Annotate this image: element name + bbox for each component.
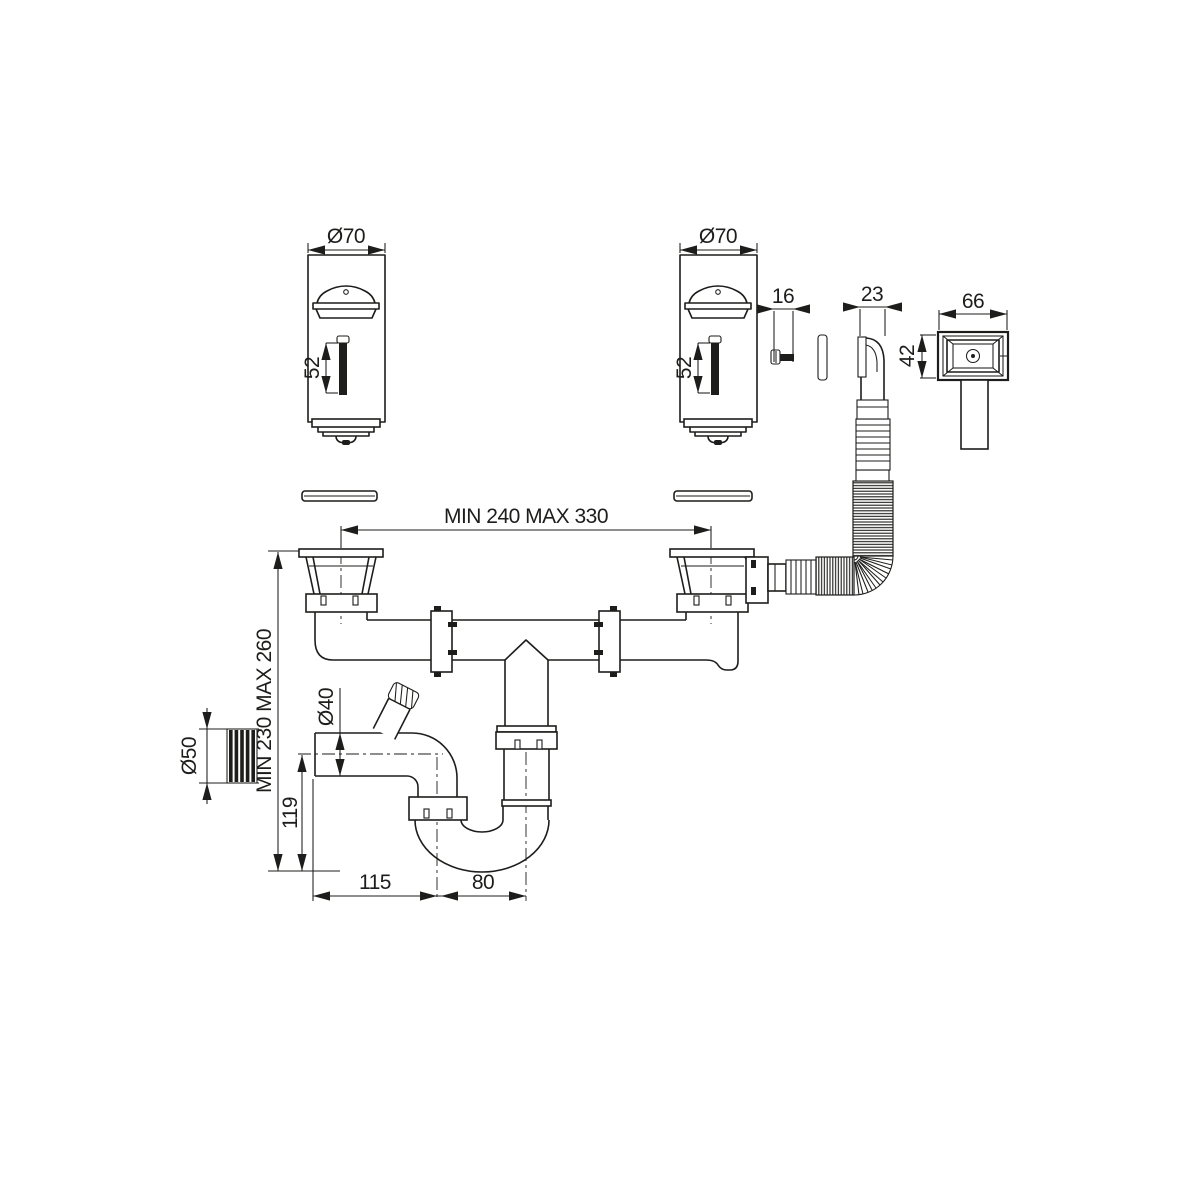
dim-overflow-elbow-width: 23: [843, 283, 902, 336]
dim-waste-pipe-diameter: Ø40: [315, 688, 345, 776]
central-tee: [496, 640, 557, 806]
dim-label-trap-horizontal-run: 115: [359, 871, 391, 894]
overflow-cover: [938, 332, 1008, 449]
dim-label-waste-pipe-diameter: Ø40: [315, 688, 338, 726]
dim-label-bowl-center-distance: MIN 240 MAX 330: [444, 505, 608, 528]
dim-strainer-diameter-left: Ø70: [308, 225, 385, 255]
overflow-cover-stem: [961, 380, 988, 449]
dim-bowl-center-distance: MIN 240 MAX 330: [341, 505, 711, 548]
pipe-coupling-right: [594, 606, 620, 677]
dim-label-strainer-diameter-right: Ø70: [699, 225, 737, 248]
left-exploded-strainer: [308, 255, 385, 445]
dishwasher-inlet: [372, 681, 421, 740]
technical-drawing-page: Ø70 Ø70 52 52 16: [0, 0, 1200, 1200]
dim-label-overflow-elbow-width: 23: [861, 283, 883, 306]
dim-plug-length-right: 52: [673, 343, 710, 393]
dim-strainer-diameter-right: Ø70: [680, 225, 757, 255]
right-exploded-strainer: [680, 255, 757, 445]
sink-siphon-technical-drawing: Ø70 Ø70 52 52 16: [0, 0, 1200, 1200]
overflow-gasket-plate: [818, 335, 827, 380]
dim-label-overflow-cover-height: 42: [896, 345, 919, 367]
dim-label-trap-inlet-height: 119: [279, 797, 302, 829]
dim-label-screw-length: 16: [772, 285, 794, 308]
dim-overflow-cover-width: 66: [939, 290, 1007, 330]
dim-trap-inlet-height: 119: [279, 755, 307, 871]
dim-label-strainer-diameter-left: Ø70: [327, 225, 365, 248]
sink-gaskets: [302, 491, 752, 501]
dim-label-outlet-diameter: Ø50: [178, 737, 201, 775]
dim-label-installation-height: MIN 230 MAX 260: [253, 629, 276, 793]
dim-overflow-cover-height: 42: [896, 335, 936, 378]
dim-plug-length-left: 52: [301, 343, 338, 393]
dim-label-overflow-cover-width: 66: [962, 290, 984, 313]
dim-label-plug-length-left: 52: [301, 357, 324, 379]
pipe-coupling-left: [431, 606, 457, 677]
dim-label-plug-length-right: 52: [673, 357, 696, 379]
dim-label-trap-bend-run: 80: [472, 871, 494, 894]
right-strainer-body: [670, 549, 754, 670]
left-strainer-body: [299, 549, 383, 660]
dim-screw-length: 16: [757, 285, 810, 362]
overflow-elbow: [858, 337, 884, 400]
